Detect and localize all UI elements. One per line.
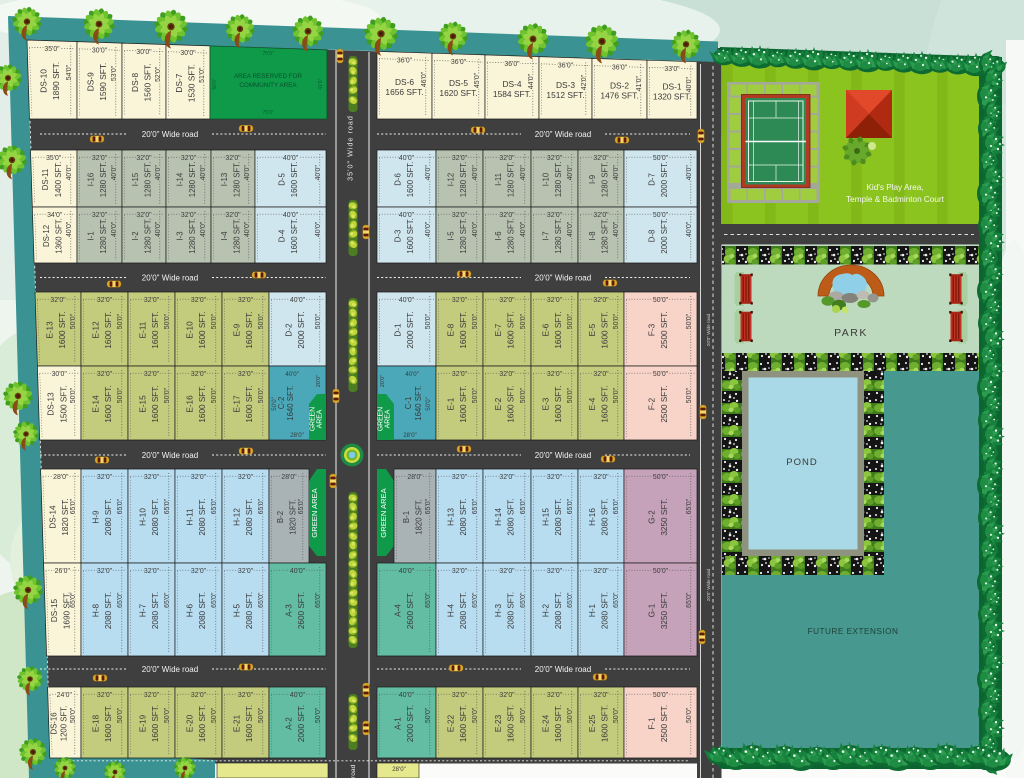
svg-text:I-4: I-4 — [220, 231, 229, 241]
svg-text:1820 SFT.: 1820 SFT. — [61, 498, 70, 535]
svg-text:50'0": 50'0" — [567, 387, 574, 403]
svg-text:E-6: E-6 — [541, 323, 550, 336]
svg-text:H-2: H-2 — [541, 603, 550, 617]
svg-text:36'0": 36'0" — [397, 57, 413, 64]
svg-text:32'0": 32'0" — [225, 155, 241, 162]
svg-text:32'0": 32'0" — [97, 474, 113, 481]
svg-text:F-2: F-2 — [647, 397, 656, 410]
svg-text:53'0": 53'0" — [111, 65, 118, 81]
svg-text:E-10: E-10 — [185, 321, 194, 339]
svg-text:E-8: E-8 — [446, 323, 455, 336]
svg-text:46'0": 46'0" — [421, 71, 428, 87]
svg-text:1600 SFT.: 1600 SFT. — [104, 385, 113, 422]
svg-text:1600 SFT.: 1600 SFT. — [245, 385, 254, 422]
svg-text:E-1: E-1 — [446, 397, 455, 410]
svg-text:1600 SFT.: 1600 SFT. — [290, 218, 299, 254]
svg-text:32'0": 32'0" — [97, 297, 113, 304]
svg-text:42'0": 42'0" — [581, 74, 588, 90]
svg-text:1280 SFT.: 1280 SFT. — [554, 218, 563, 254]
svg-text:50'0": 50'0" — [70, 387, 77, 403]
svg-text:1600 SFT.: 1600 SFT. — [198, 705, 207, 742]
svg-text:2000 SFT.: 2000 SFT. — [297, 705, 306, 742]
svg-text:50'0": 50'0" — [211, 707, 218, 723]
svg-text:E-21: E-21 — [232, 714, 241, 732]
svg-text:24'0": 24'0" — [57, 692, 73, 699]
svg-text:50'0": 50'0" — [425, 707, 432, 723]
svg-text:35'0": 35'0" — [44, 46, 60, 53]
svg-text:50'0": 50'0" — [653, 212, 669, 219]
svg-text:32'0": 32'0" — [136, 155, 152, 162]
svg-text:65'0": 65'0" — [258, 498, 265, 514]
svg-text:75'0": 75'0" — [262, 51, 273, 57]
svg-text:40'0": 40'0" — [283, 155, 299, 162]
svg-text:2080 SFT.: 2080 SFT. — [104, 498, 113, 535]
svg-text:20'0" Wide road: 20'0" Wide road — [142, 665, 198, 674]
svg-text:1600 SFT.: 1600 SFT. — [554, 705, 563, 742]
svg-text:40'0": 40'0" — [399, 297, 415, 304]
svg-text:65'0": 65'0" — [70, 498, 77, 514]
svg-text:E-11: E-11 — [138, 321, 147, 338]
svg-text:E-18: E-18 — [91, 714, 100, 732]
svg-text:50'0": 50'0" — [567, 313, 574, 329]
svg-text:32'0": 32'0" — [238, 371, 254, 378]
svg-text:2000 SFT.: 2000 SFT. — [406, 705, 415, 742]
svg-text:E-19: E-19 — [138, 714, 147, 732]
svg-text:50'0": 50'0" — [520, 313, 527, 329]
svg-text:65'0": 65'0" — [117, 592, 124, 608]
svg-text:40'0": 40'0" — [111, 165, 118, 181]
svg-text:32'0": 32'0" — [452, 155, 468, 162]
svg-text:GREEN: GREEN — [310, 407, 317, 432]
svg-text:32'0": 32'0" — [593, 692, 609, 699]
svg-text:1280 SFT.: 1280 SFT. — [601, 162, 610, 198]
svg-text:40'0": 40'0" — [405, 371, 419, 378]
svg-text:40'0": 40'0" — [315, 165, 322, 181]
svg-text:I-5: I-5 — [446, 231, 455, 241]
svg-text:20'0": 20'0" — [380, 375, 386, 387]
svg-text:50'0": 50'0" — [686, 707, 693, 723]
svg-text:50'0": 50'0" — [164, 387, 171, 403]
svg-text:65'0": 65'0" — [315, 592, 322, 608]
svg-text:40'0": 40'0" — [399, 212, 415, 219]
svg-text:40'0": 40'0" — [472, 165, 479, 181]
svg-text:40'0": 40'0" — [66, 221, 73, 237]
svg-text:54'0": 54'0" — [66, 64, 73, 80]
svg-text:G-2: G-2 — [647, 510, 656, 524]
svg-text:2080 SFT.: 2080 SFT. — [507, 592, 516, 629]
svg-text:H-8: H-8 — [91, 603, 100, 617]
svg-text:28'0": 28'0" — [290, 432, 304, 439]
svg-text:DS-4: DS-4 — [502, 79, 521, 89]
svg-text:65'0": 65'0" — [164, 592, 171, 608]
svg-text:GREEN: GREEN — [378, 407, 385, 432]
svg-text:DS-2: DS-2 — [610, 81, 629, 91]
svg-text:75'0": 75'0" — [262, 110, 273, 116]
svg-text:35'0": 35'0" — [46, 155, 62, 162]
svg-text:1600 SFT.: 1600 SFT. — [245, 311, 254, 348]
svg-text:32'0": 32'0" — [144, 568, 160, 575]
svg-text:50'0": 50'0" — [686, 387, 693, 403]
svg-text:I-1: I-1 — [86, 231, 95, 240]
svg-text:35'0" Wide road: 35'0" Wide road — [346, 115, 355, 181]
svg-text:D-1: D-1 — [393, 323, 402, 337]
svg-text:32'0": 32'0" — [452, 568, 468, 575]
svg-text:34'0": 34'0" — [47, 212, 63, 219]
svg-text:50'0": 50'0" — [164, 313, 171, 329]
svg-text:I-12: I-12 — [446, 173, 455, 186]
svg-text:POND: POND — [786, 457, 817, 468]
svg-text:H-10: H-10 — [138, 508, 147, 526]
svg-text:1280 SFT.: 1280 SFT. — [554, 162, 563, 198]
svg-text:1600 SFT.: 1600 SFT. — [151, 705, 160, 742]
svg-text:A-4: A-4 — [393, 604, 402, 617]
svg-text:1600 SFT.: 1600 SFT. — [601, 385, 610, 422]
svg-text:I-9: I-9 — [588, 175, 597, 184]
svg-text:40'0": 40'0" — [111, 221, 118, 237]
svg-text:32'0": 32'0" — [238, 568, 254, 575]
svg-text:32'0": 32'0" — [452, 474, 468, 481]
svg-text:I-15: I-15 — [131, 172, 140, 186]
svg-text:2080 SFT.: 2080 SFT. — [459, 592, 468, 629]
svg-text:1280 SFT.: 1280 SFT. — [188, 162, 197, 198]
svg-text:50'0": 50'0" — [425, 397, 432, 411]
svg-text:1280 SFT.: 1280 SFT. — [459, 218, 468, 254]
svg-text:40'0": 40'0" — [425, 221, 432, 237]
svg-text:32'0": 32'0" — [238, 297, 254, 304]
svg-text:65'0": 65'0" — [117, 498, 124, 514]
svg-text:65'0": 65'0" — [425, 498, 432, 514]
svg-text:2080 SFT.: 2080 SFT. — [104, 592, 113, 629]
svg-text:28'0": 28'0" — [407, 474, 423, 481]
svg-text:DS-6: DS-6 — [395, 77, 414, 87]
svg-text:1280 SFT.: 1280 SFT. — [459, 162, 468, 198]
svg-text:2000 SFT.: 2000 SFT. — [660, 162, 669, 198]
svg-text:28'0": 28'0" — [392, 766, 406, 773]
svg-text:1600 SFT.: 1600 SFT. — [507, 385, 516, 422]
svg-text:F-1: F-1 — [647, 717, 656, 730]
svg-text:50'0": 50'0" — [520, 387, 527, 403]
svg-text:50'0": 50'0" — [653, 474, 669, 481]
svg-text:1600 SFT.: 1600 SFT. — [290, 162, 299, 198]
svg-text:32'0": 32'0" — [593, 155, 609, 162]
svg-text:A-1: A-1 — [393, 717, 402, 730]
svg-text:52'0": 52'0" — [155, 66, 162, 82]
svg-text:40'0": 40'0" — [290, 692, 306, 699]
svg-text:2080 SFT.: 2080 SFT. — [459, 498, 468, 535]
svg-text:32'0": 32'0" — [547, 371, 563, 378]
svg-text:DS-5: DS-5 — [449, 78, 468, 88]
svg-text:40'0": 40'0" — [283, 212, 299, 219]
svg-text:65'0": 65'0" — [686, 592, 693, 608]
svg-text:28'0": 28'0" — [281, 474, 297, 481]
svg-text:40'0": 40'0" — [399, 692, 415, 699]
svg-text:1600 SFT.: 1600 SFT. — [104, 311, 113, 348]
svg-text:50'0": 50'0" — [315, 707, 322, 723]
svg-text:20'0" Wide road: 20'0" Wide road — [706, 568, 711, 601]
svg-text:H-11: H-11 — [185, 508, 194, 526]
svg-text:50'0": 50'0" — [117, 313, 124, 329]
svg-text:E-15: E-15 — [138, 395, 147, 413]
svg-text:36'0": 36'0" — [451, 59, 467, 66]
svg-text:1600 SFT.: 1600 SFT. — [104, 705, 113, 742]
svg-text:I-8: I-8 — [588, 231, 597, 240]
svg-text:20'0": 20'0" — [316, 375, 322, 387]
svg-text:32'0": 32'0" — [191, 297, 207, 304]
svg-text:H-13: H-13 — [446, 508, 455, 526]
svg-text:44'0": 44'0" — [528, 73, 535, 89]
svg-text:D-2: D-2 — [284, 323, 293, 337]
svg-text:41'0": 41'0" — [636, 76, 643, 92]
svg-text:50'0": 50'0" — [653, 297, 669, 304]
svg-text:DS-11: DS-11 — [41, 169, 50, 191]
svg-text:20'0" Wide road: 20'0" Wide road — [142, 273, 198, 282]
svg-text:30'0": 30'0" — [180, 50, 196, 57]
svg-text:50'0": 50'0" — [117, 387, 124, 403]
svg-text:36'0": 36'0" — [558, 63, 574, 70]
svg-text:2000 SFT.: 2000 SFT. — [297, 311, 306, 348]
svg-text:1280 SFT.: 1280 SFT. — [601, 218, 610, 254]
svg-text:65'0": 65'0" — [298, 498, 305, 514]
svg-text:40'0": 40'0" — [567, 165, 574, 181]
svg-text:32'0": 32'0" — [144, 692, 160, 699]
svg-text:H-12: H-12 — [232, 508, 241, 526]
svg-text:32'0": 32'0" — [593, 297, 609, 304]
svg-text:50'0": 50'0" — [258, 707, 265, 723]
svg-text:65'0": 65'0" — [164, 498, 171, 514]
svg-text:1600 SFT.: 1600 SFT. — [601, 311, 610, 348]
svg-text:1280 SFT.: 1280 SFT. — [233, 218, 242, 254]
svg-text:A-2: A-2 — [284, 717, 293, 730]
svg-text:Kid's Play Area,: Kid's Play Area, — [866, 183, 923, 192]
svg-text:1280 SFT.: 1280 SFT. — [99, 218, 108, 254]
svg-text:PARK: PARK — [834, 327, 868, 339]
svg-text:I-14: I-14 — [175, 172, 184, 186]
svg-text:32'0": 32'0" — [238, 692, 254, 699]
svg-text:1512 SFT.: 1512 SFT. — [546, 90, 584, 100]
svg-text:50'0": 50'0" — [653, 155, 669, 162]
svg-text:2500 SFT.: 2500 SFT. — [660, 705, 669, 742]
svg-text:32'0": 32'0" — [191, 371, 207, 378]
svg-text:GREEN AREA: GREEN AREA — [379, 487, 388, 537]
svg-text:32'0": 32'0" — [547, 297, 563, 304]
svg-text:50'0": 50'0" — [567, 707, 574, 723]
svg-text:65'0": 65'0" — [472, 498, 479, 514]
svg-text:H-7: H-7 — [138, 603, 147, 617]
svg-text:32'0": 32'0" — [593, 474, 609, 481]
svg-text:2500 SFT.: 2500 SFT. — [660, 385, 669, 422]
svg-text:32'0": 32'0" — [238, 474, 254, 481]
svg-text:2080 SFT.: 2080 SFT. — [554, 592, 563, 629]
svg-text:B-2: B-2 — [276, 511, 285, 523]
svg-text:H-9: H-9 — [91, 510, 100, 524]
svg-text:40'0": 40'0" — [613, 221, 620, 237]
svg-text:51'0": 51'0" — [199, 67, 206, 83]
svg-text:DS-15: DS-15 — [50, 598, 59, 622]
svg-text:50'0": 50'0" — [212, 78, 218, 89]
svg-text:65'0": 65'0" — [613, 498, 620, 514]
svg-text:40'0": 40'0" — [613, 165, 620, 181]
svg-text:32'0": 32'0" — [547, 568, 563, 575]
svg-text:65'0": 65'0" — [425, 592, 432, 608]
svg-text:3250 SFT.: 3250 SFT. — [660, 498, 669, 535]
svg-text:E-25: E-25 — [588, 714, 597, 732]
svg-text:AREA: AREA — [317, 409, 324, 428]
svg-text:36'0": 36'0" — [504, 61, 520, 68]
svg-text:D-3: D-3 — [393, 230, 402, 243]
svg-text:32'0": 32'0" — [499, 212, 515, 219]
svg-text:32'0": 32'0" — [50, 297, 66, 304]
svg-text:H-15: H-15 — [541, 508, 550, 526]
svg-text:32'0": 32'0" — [499, 371, 515, 378]
svg-text:32'0": 32'0" — [92, 155, 108, 162]
svg-text:20'0" Wide road: 20'0" Wide road — [142, 130, 198, 139]
svg-text:32'0": 32'0" — [452, 297, 468, 304]
svg-text:GREEN AREA: GREEN AREA — [310, 487, 319, 537]
svg-text:1600 SFT.: 1600 SFT. — [507, 311, 516, 348]
svg-text:I-2: I-2 — [131, 231, 140, 240]
svg-text:2080 SFT.: 2080 SFT. — [151, 498, 160, 535]
svg-text:DS-14: DS-14 — [48, 505, 57, 529]
svg-text:D-4: D-4 — [277, 229, 286, 242]
svg-text:1690 SFT.: 1690 SFT. — [63, 592, 72, 629]
svg-text:1476 SFT.: 1476 SFT. — [600, 91, 638, 101]
svg-text:50'0": 50'0" — [653, 371, 669, 378]
svg-text:1200 SFT.: 1200 SFT. — [60, 706, 69, 742]
svg-text:65'0": 65'0" — [567, 498, 574, 514]
svg-text:F-3: F-3 — [647, 323, 656, 336]
svg-text:50'0": 50'0" — [520, 707, 527, 723]
svg-text:2080 SFT.: 2080 SFT. — [245, 498, 254, 535]
svg-text:40'0": 40'0" — [290, 297, 306, 304]
svg-text:32'0": 32'0" — [593, 212, 609, 219]
svg-text:32'0": 32'0" — [144, 297, 160, 304]
svg-text:40'0": 40'0" — [399, 568, 415, 575]
svg-text:1600 SFT.: 1600 SFT. — [554, 311, 563, 348]
svg-text:1620 SFT.: 1620 SFT. — [439, 88, 477, 98]
svg-text:E-9: E-9 — [232, 323, 241, 336]
svg-text:65'0": 65'0" — [686, 498, 693, 514]
svg-text:1360 SFT.: 1360 SFT. — [55, 218, 64, 254]
svg-text:50'0": 50'0" — [425, 313, 432, 329]
svg-text:40'0": 40'0" — [567, 221, 574, 237]
svg-text:1820 SFT.: 1820 SFT. — [289, 499, 298, 535]
svg-text:AREA RESERVED FOR: AREA RESERVED FOR — [234, 73, 303, 80]
svg-text:32'0": 32'0" — [593, 568, 609, 575]
svg-text:50'0": 50'0" — [315, 313, 322, 329]
svg-text:50'0": 50'0" — [472, 313, 479, 329]
svg-text:32'0": 32'0" — [191, 692, 207, 699]
svg-text:D-7: D-7 — [647, 173, 656, 186]
svg-text:20'0" Wide road: 20'0" Wide road — [535, 665, 591, 674]
svg-text:50'0": 50'0" — [472, 387, 479, 403]
svg-text:40'0": 40'0" — [520, 165, 527, 181]
svg-text:1600 SFT.: 1600 SFT. — [58, 311, 67, 348]
svg-text:E-7: E-7 — [494, 323, 503, 336]
svg-text:32'0": 32'0" — [547, 155, 563, 162]
svg-text:2080 SFT.: 2080 SFT. — [601, 498, 610, 535]
svg-text:1320 SFT.: 1320 SFT. — [653, 92, 691, 102]
svg-text:32'0": 32'0" — [499, 155, 515, 162]
svg-text:1600 SFT.: 1600 SFT. — [601, 705, 610, 742]
svg-text:E-22: E-22 — [446, 714, 455, 732]
svg-text:50'0": 50'0" — [211, 313, 218, 329]
svg-text:1600 SFT.: 1600 SFT. — [459, 311, 468, 348]
svg-text:65'0": 65'0" — [613, 592, 620, 608]
svg-text:40'0": 40'0" — [425, 165, 432, 181]
svg-text:32'0": 32'0" — [499, 297, 515, 304]
svg-text:2080 SFT.: 2080 SFT. — [198, 592, 207, 629]
svg-text:1500 SFT.: 1500 SFT. — [59, 385, 68, 422]
svg-text:1640 SFT.: 1640 SFT. — [414, 385, 423, 421]
svg-text:2500 SFT.: 2500 SFT. — [660, 311, 669, 348]
svg-text:1890 SFT.: 1890 SFT. — [51, 62, 61, 100]
svg-text:E-20: E-20 — [185, 714, 194, 732]
svg-text:1820 SFT.: 1820 SFT. — [415, 499, 424, 535]
svg-text:A-3: A-3 — [284, 604, 293, 617]
svg-text:D-6: D-6 — [393, 173, 402, 186]
svg-text:1280 SFT.: 1280 SFT. — [233, 162, 242, 198]
svg-text:DS-12: DS-12 — [42, 225, 51, 247]
svg-text:50'0": 50'0" — [653, 568, 669, 575]
svg-text:1280 SFT.: 1280 SFT. — [99, 162, 108, 198]
svg-text:41'6": 41'6" — [318, 78, 324, 89]
svg-text:50'0": 50'0" — [271, 397, 278, 411]
svg-text:30'0": 30'0" — [92, 47, 108, 54]
svg-text:28'0": 28'0" — [53, 474, 69, 481]
svg-text:E-23: E-23 — [494, 714, 503, 732]
svg-text:C-2: C-2 — [277, 397, 286, 410]
svg-text:FUTURE EXTENSION: FUTURE EXTENSION — [808, 627, 899, 636]
svg-text:40'0": 40'0" — [200, 221, 207, 237]
svg-text:H-1: H-1 — [588, 603, 597, 617]
svg-text:1590 SFT.: 1590 SFT. — [98, 63, 108, 101]
svg-text:1600 SFT.: 1600 SFT. — [245, 705, 254, 742]
svg-text:32'0": 32'0" — [225, 212, 241, 219]
svg-text:32'0": 32'0" — [499, 692, 515, 699]
svg-text:65'0": 65'0" — [258, 592, 265, 608]
svg-text:40'0": 40'0" — [66, 165, 73, 181]
svg-text:DS-16: DS-16 — [50, 712, 59, 734]
svg-text:1530 SFT.: 1530 SFT. — [187, 64, 197, 102]
svg-text:1400 SFT.: 1400 SFT. — [54, 162, 63, 198]
svg-text:36'0": 36'0" — [612, 64, 628, 71]
svg-text:40'0": 40'0" — [315, 221, 322, 237]
svg-text:40'0": 40'0" — [200, 165, 207, 181]
svg-text:1280 SFT.: 1280 SFT. — [144, 218, 153, 254]
svg-text:32'0": 32'0" — [92, 212, 108, 219]
svg-text:1600 SFT.: 1600 SFT. — [198, 311, 207, 348]
svg-text:40'0": 40'0" — [244, 165, 251, 181]
svg-text:E-5: E-5 — [588, 323, 597, 336]
svg-text:I-16: I-16 — [86, 173, 95, 186]
svg-text:2080 SFT.: 2080 SFT. — [198, 498, 207, 535]
svg-text:40'0": 40'0" — [244, 221, 251, 237]
svg-text:2000 SFT.: 2000 SFT. — [406, 311, 415, 348]
svg-text:40'0": 40'0" — [285, 371, 299, 378]
svg-text:DS-13: DS-13 — [47, 392, 56, 416]
svg-text:32'0": 32'0" — [144, 371, 160, 378]
svg-text:32'0": 32'0" — [191, 474, 207, 481]
svg-text:1560 SFT.: 1560 SFT. — [143, 63, 153, 101]
svg-text:32'0": 32'0" — [97, 692, 113, 699]
svg-text:1280 SFT.: 1280 SFT. — [144, 162, 153, 198]
svg-text:45'0": 45'0" — [474, 72, 481, 88]
svg-text:50'0": 50'0" — [164, 707, 171, 723]
svg-text:1600 SFT.: 1600 SFT. — [198, 385, 207, 422]
svg-text:2000 SFT.: 2000 SFT. — [660, 218, 669, 254]
svg-text:32'0": 32'0" — [547, 212, 563, 219]
svg-text:DS-10: DS-10 — [38, 69, 48, 93]
